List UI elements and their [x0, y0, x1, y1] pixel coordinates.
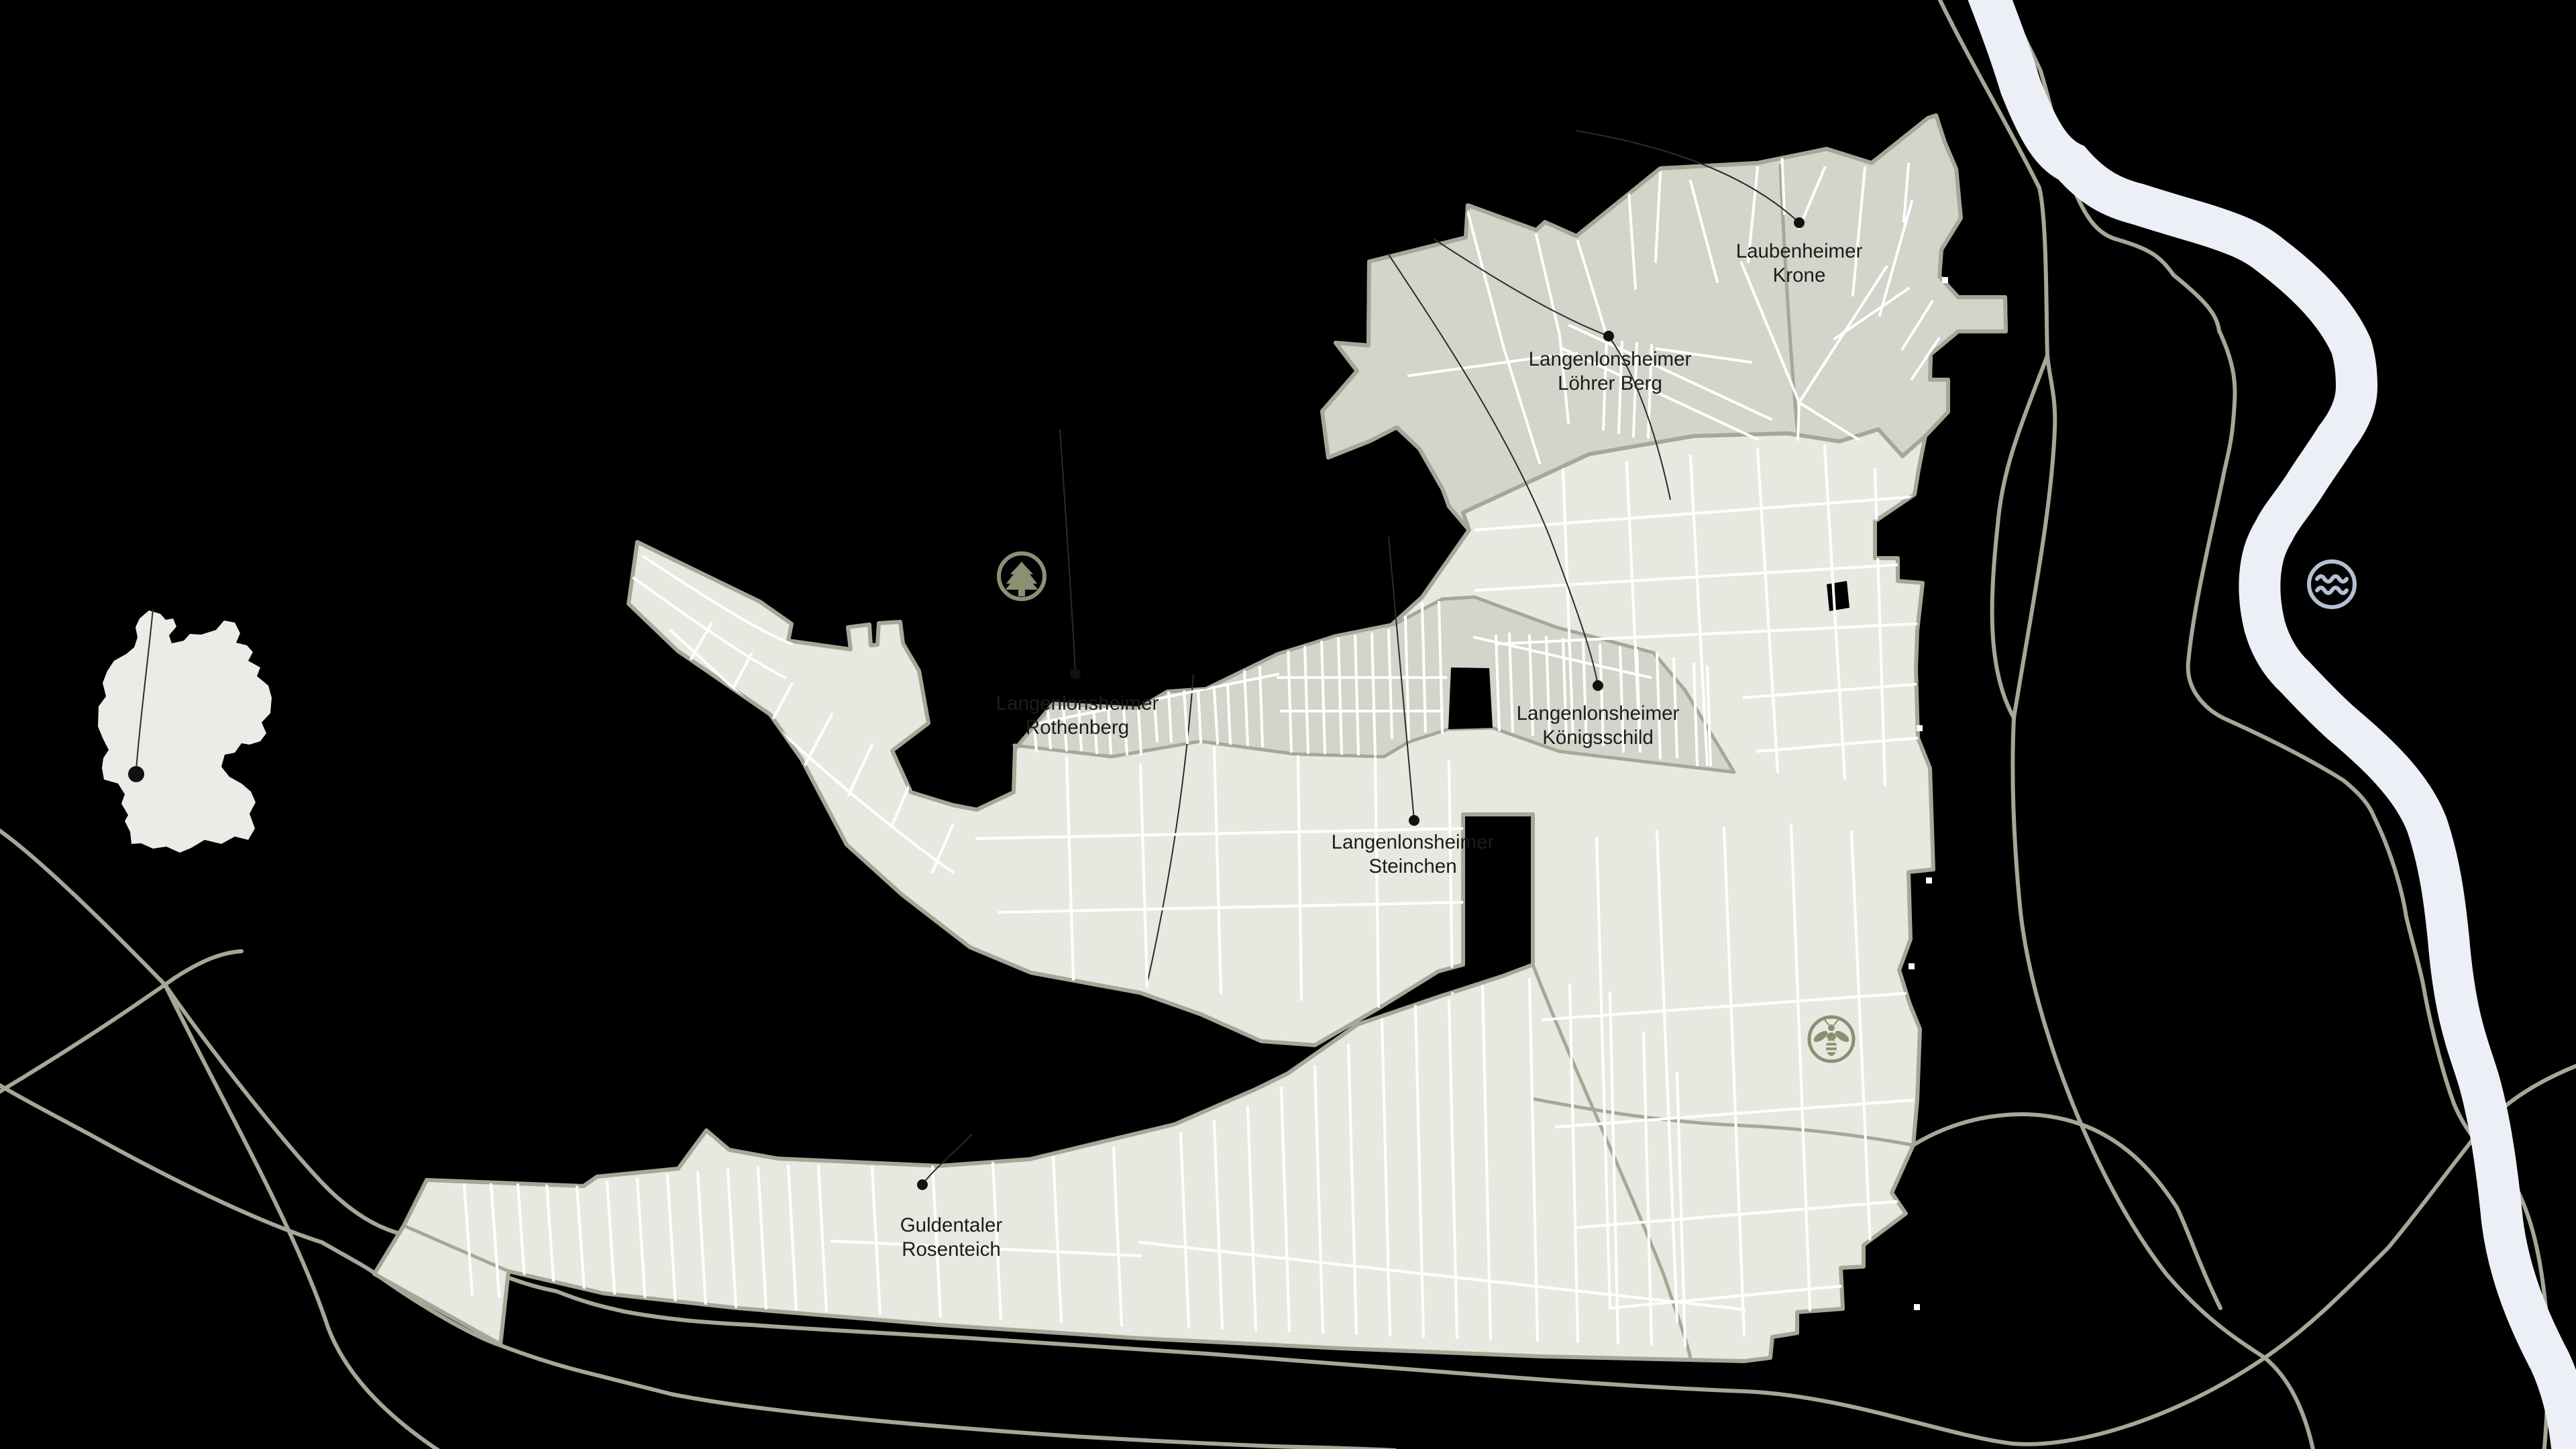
svg-text:Königsschild: Königsschild: [1542, 727, 1654, 749]
svg-text:Guldentaler: Guldentaler: [900, 1214, 1003, 1236]
svg-text:Langenlonsheimer: Langenlonsheimer: [1332, 831, 1495, 853]
svg-text:Langenlonsheimer: Langenlonsheimer: [996, 692, 1159, 714]
svg-text:Krone: Krone: [1773, 264, 1826, 286]
svg-text:Steinchen: Steinchen: [1368, 855, 1456, 877]
svg-text:Langenlonsheimer: Langenlonsheimer: [1529, 348, 1692, 370]
svg-text:Langenlonsheimer: Langenlonsheimer: [1517, 702, 1680, 724]
svg-text:Rothenberg: Rothenberg: [1026, 716, 1129, 739]
svg-text:Rosenteich: Rosenteich: [902, 1238, 1001, 1260]
svg-text:Laubenheimer: Laubenheimer: [1736, 240, 1863, 262]
svg-text:Löhrer Berg: Löhrer Berg: [1558, 372, 1662, 394]
